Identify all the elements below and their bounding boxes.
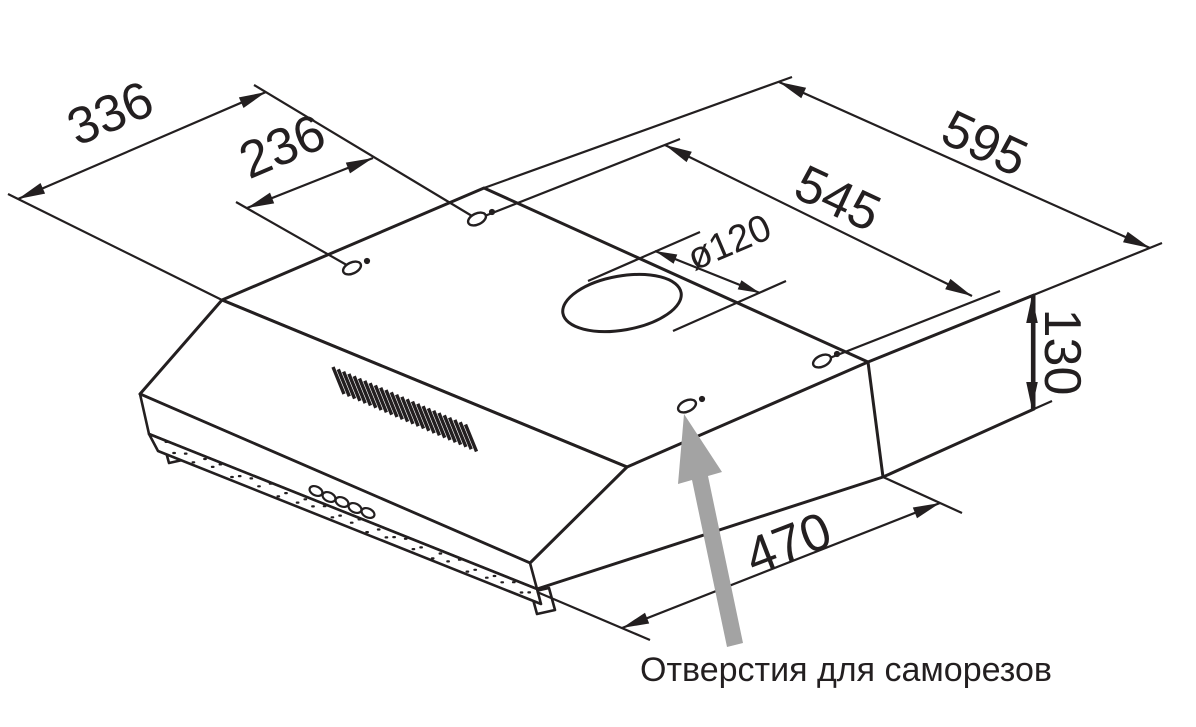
right-side-face — [868, 295, 1034, 477]
label-130: 130 — [1033, 309, 1091, 396]
caption-screw-holes: Отверстия для саморезов — [640, 651, 1052, 689]
label-595: 595 — [933, 99, 1036, 188]
technical-drawing: 336 236 595 545 ø120 130 470 Отверстия д… — [0, 0, 1196, 727]
ext-130-bottom — [1034, 401, 1052, 409]
label-470: 470 — [737, 501, 839, 586]
ext-470-left — [537, 592, 650, 640]
screw-dot — [699, 396, 705, 402]
label-236: 236 — [231, 103, 334, 190]
hood-body — [140, 188, 1034, 614]
ext-236-left — [236, 202, 352, 268]
screw-dot — [364, 258, 370, 264]
label-545: 545 — [786, 154, 889, 243]
cooker-hood-installation-drawing: 336 236 595 545 ø120 130 470 Отверстия д… — [0, 0, 1196, 727]
screw-dot — [834, 351, 840, 357]
screw-dot — [489, 209, 495, 215]
screw-holes-pointer-arrow — [678, 414, 743, 647]
ext-336-left — [8, 194, 222, 300]
ext-595-left — [484, 77, 792, 188]
label-duct-diameter: ø120 — [681, 207, 777, 280]
